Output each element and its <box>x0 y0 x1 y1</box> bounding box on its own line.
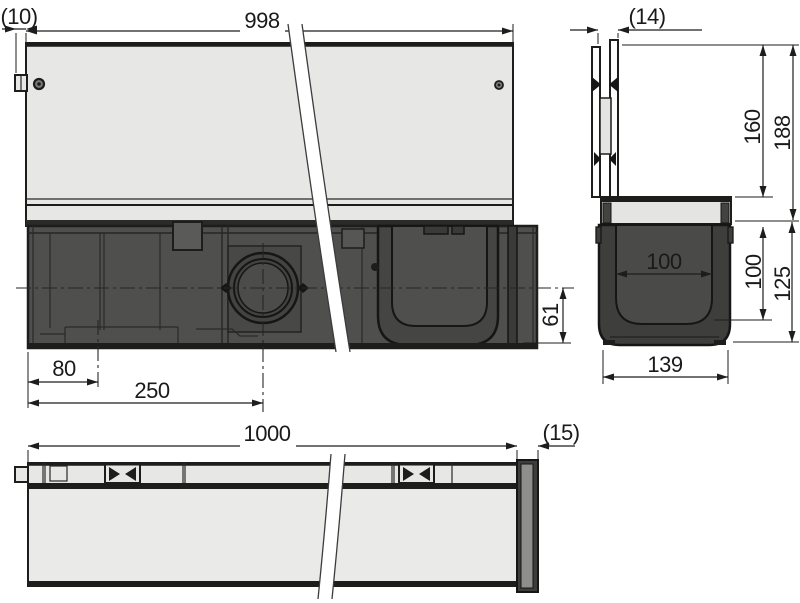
section-foot <box>714 340 726 345</box>
dim-15-label: (15) <box>542 420 579 445</box>
rim-strip <box>28 463 517 484</box>
screw-right-icon <box>495 81 503 89</box>
dim-1000-label: 1000 <box>244 421 291 446</box>
rear-dimensions: 1000 (15) <box>28 420 580 466</box>
dim-61-label: 61 <box>538 303 563 327</box>
rear-left-tab <box>15 467 28 482</box>
dim-80: 80 <box>28 352 98 408</box>
dim-125-label: 125 <box>770 266 795 301</box>
u-profile-inner <box>392 226 487 326</box>
dim-100-depth-label: 100 <box>741 254 766 289</box>
section-rim-lip <box>596 227 601 243</box>
dim-80-label: 80 <box>52 356 76 381</box>
section-grate-end <box>603 203 611 223</box>
dim-188: 188 <box>770 45 797 220</box>
u-top-notch <box>424 226 448 234</box>
dim-139-label: 139 <box>647 352 682 377</box>
dim-1000: 1000 <box>28 421 517 466</box>
upstand-grate-insert <box>600 98 611 154</box>
rear-body <box>28 484 517 586</box>
dim-100-width-label: 100 <box>646 249 681 274</box>
body-lock-tab <box>173 222 202 250</box>
section-grate-top <box>601 197 731 202</box>
section-rim-lip <box>728 227 733 243</box>
dim-160-label: 160 <box>740 109 765 144</box>
drawing-stage: 998 (10) 80 250 <box>0 0 800 603</box>
section-grate-end <box>721 203 729 223</box>
dim-10-label: (10) <box>0 4 37 29</box>
base-edge <box>28 343 537 348</box>
rear-body-top-band <box>28 484 517 489</box>
section-foot <box>603 340 615 345</box>
dim-160: 160 <box>740 45 767 197</box>
dim-125: 125 <box>770 222 796 342</box>
dim-14: (14) <box>570 4 702 44</box>
dim-250-label: 250 <box>134 378 169 403</box>
dim-100-depth: 100 <box>741 227 767 320</box>
lock-clip <box>399 465 434 484</box>
dim-15: (15) <box>538 420 580 459</box>
pin-dot <box>371 263 379 271</box>
rear-body-bottom-band <box>28 581 517 586</box>
dim-998-label: 998 <box>244 8 279 33</box>
lock-clip <box>105 465 140 484</box>
dim-188-label: 188 <box>770 115 795 150</box>
upstand-outer-skin <box>592 47 600 197</box>
u-top-notch <box>452 226 464 234</box>
body-lock-tab <box>342 229 364 248</box>
body-end-strip <box>508 226 517 345</box>
dim-139: 139 <box>603 350 728 384</box>
technical-drawing: 998 (10) 80 250 <box>0 0 800 603</box>
dim-14-label: (14) <box>628 4 665 29</box>
side-elevation-view <box>15 43 574 412</box>
screw-left-icon <box>34 79 44 89</box>
end-cap <box>517 460 538 592</box>
rear-elevation-view <box>15 460 538 592</box>
cross-section-view <box>592 40 733 345</box>
